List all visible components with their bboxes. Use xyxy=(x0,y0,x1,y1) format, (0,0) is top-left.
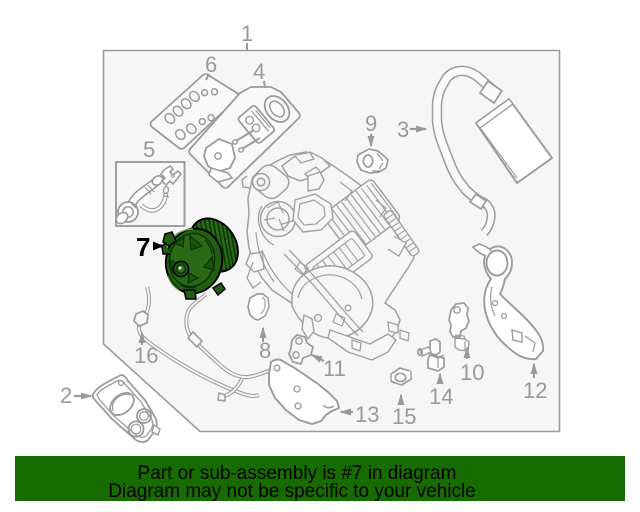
svg-text:1: 1 xyxy=(241,21,253,46)
svg-text:9: 9 xyxy=(365,111,377,136)
svg-text:12: 12 xyxy=(523,378,547,403)
svg-text:15: 15 xyxy=(392,404,416,429)
svg-text:16: 16 xyxy=(134,343,158,368)
svg-text:10: 10 xyxy=(460,360,484,385)
svg-text:8: 8 xyxy=(259,338,271,363)
svg-text:4: 4 xyxy=(253,59,265,84)
svg-text:13: 13 xyxy=(355,402,379,427)
svg-text:3: 3 xyxy=(397,117,409,142)
svg-text:6: 6 xyxy=(205,52,217,77)
svg-text:14: 14 xyxy=(429,384,453,409)
svg-text:2: 2 xyxy=(60,383,72,408)
svg-text:11: 11 xyxy=(323,356,346,381)
svg-text:7: 7 xyxy=(136,232,150,262)
svg-text:5: 5 xyxy=(143,137,155,162)
svg-text:Diagram may not be specific to: Diagram may not be specific to your vehi… xyxy=(108,481,476,502)
